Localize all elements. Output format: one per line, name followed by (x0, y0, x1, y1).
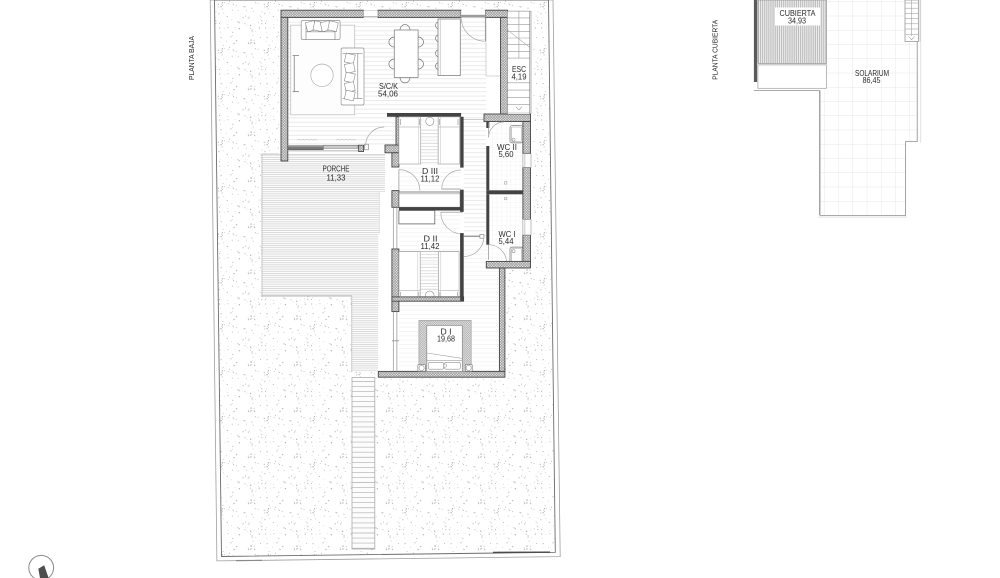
svg-text:5,44: 5,44 (499, 237, 515, 246)
svg-text:4,19: 4,19 (512, 73, 528, 82)
svg-text:11,42: 11,42 (421, 242, 441, 251)
svg-text:PORCHE: PORCHE (323, 164, 350, 173)
svg-text:11,33: 11,33 (327, 174, 347, 183)
svg-text:54,06: 54,06 (378, 90, 399, 99)
svg-text:19,68: 19,68 (437, 334, 455, 343)
svg-text:86,45: 86,45 (863, 76, 881, 85)
svg-text:PLANTA BAJA: PLANTA BAJA (187, 36, 196, 80)
svg-text:11,12: 11,12 (421, 174, 441, 183)
svg-text:PLANTA CUBIERTA: PLANTA CUBIERTA (710, 20, 719, 80)
svg-text:34,93: 34,93 (788, 16, 806, 25)
svg-text:5,60: 5,60 (499, 150, 515, 159)
